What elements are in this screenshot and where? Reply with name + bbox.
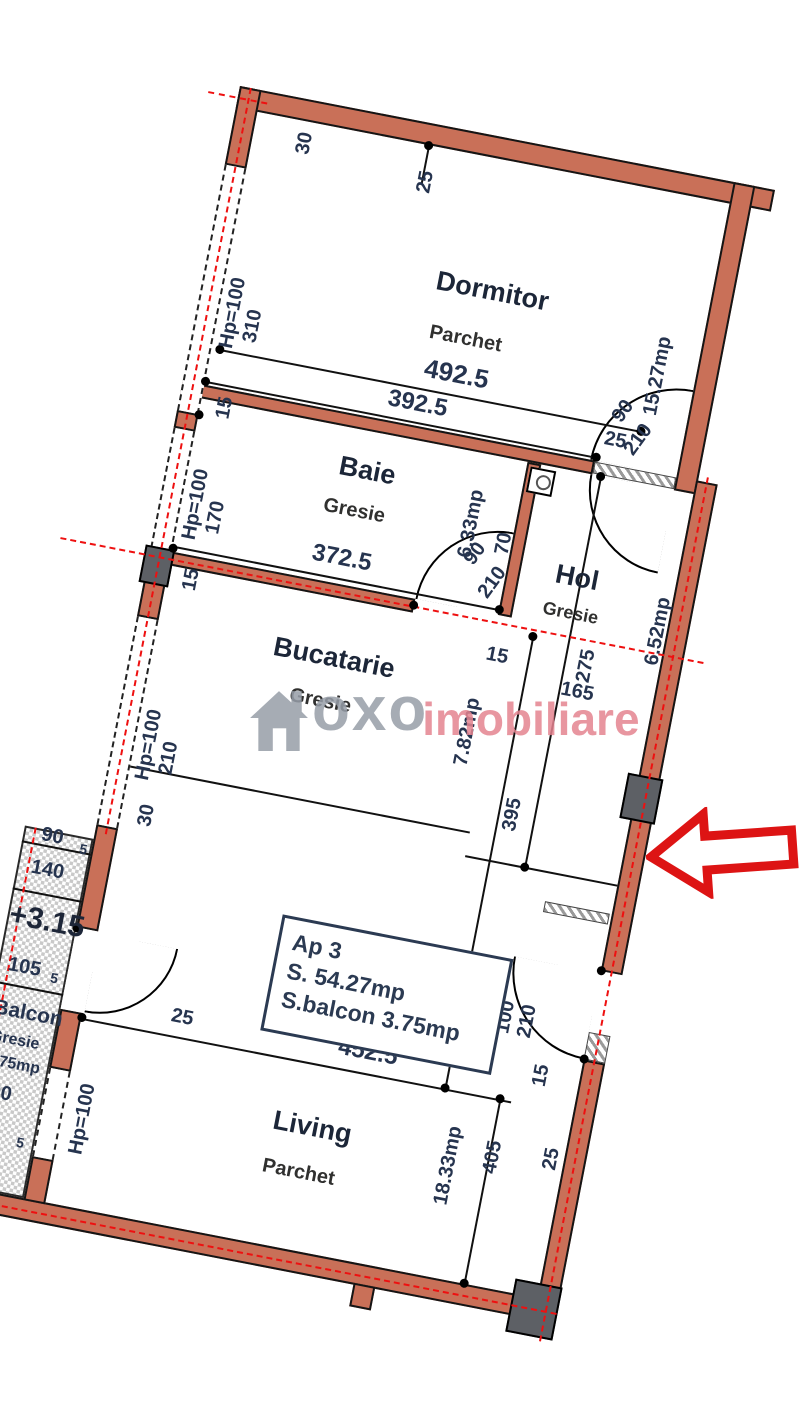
- dim-label: 170: [202, 499, 228, 536]
- wall-top: [236, 86, 775, 212]
- dim-label: 15: [179, 567, 203, 593]
- dim-label: 275: [573, 648, 599, 685]
- watermark: oxo imobiliare: [248, 682, 640, 761]
- watermark-suffix: imobiliare: [422, 696, 639, 742]
- node-dot: [194, 409, 205, 420]
- sink-icon: [526, 466, 556, 496]
- dim-label: 25: [170, 1005, 196, 1029]
- axis-line: [105, 88, 252, 834]
- room-label-living: Living: [271, 1107, 354, 1149]
- room-label-hol: Hol: [553, 560, 601, 595]
- node-dot: [77, 1012, 88, 1023]
- door-arc-hol: [574, 474, 674, 574]
- dim-line: [464, 1099, 502, 1284]
- dim-label: 90: [40, 824, 66, 848]
- room-label-baie: Baie: [337, 452, 398, 489]
- dim-label: 15: [529, 1063, 553, 1089]
- dim-label: 25: [413, 169, 437, 195]
- dim-label: 30: [134, 803, 158, 829]
- room-floor-baie: Gresie: [322, 495, 387, 527]
- room-floor-hol: Gresie: [541, 599, 599, 627]
- dim-label: 210: [155, 740, 181, 777]
- dim-label: 395: [499, 796, 525, 833]
- floor-plan-page: Dormitor Parchet 15.27mp Baie Gresie 6.3…: [0, 0, 800, 1424]
- dim-label: 15: [484, 644, 510, 668]
- watermark-brand: oxo: [312, 682, 428, 738]
- wall-right-upper: [674, 182, 756, 494]
- wall-bottom: [0, 1185, 559, 1324]
- node-dot: [408, 600, 419, 611]
- dim-label: 492.5: [422, 355, 491, 393]
- node-dot: [528, 631, 539, 642]
- door-arc-balcon: [84, 934, 178, 1028]
- room-area-living: 18.33mp: [430, 1124, 465, 1206]
- dim-label: 372.5: [310, 541, 374, 576]
- node-dot: [519, 862, 530, 873]
- dim-label: 30: [292, 130, 316, 156]
- dim-label: 15: [212, 395, 236, 421]
- entrance-arrow-icon: [643, 801, 800, 908]
- dim-label: 25: [539, 1146, 563, 1172]
- node-dot: [495, 1093, 506, 1104]
- room-label-dormitor: Dormitor: [434, 267, 551, 315]
- dim-label: Hp=100: [65, 1082, 98, 1156]
- dim-line: [130, 766, 470, 834]
- dim-label: 70: [492, 531, 516, 557]
- node-dot: [440, 1083, 451, 1094]
- house-icon: [248, 682, 310, 761]
- hall-sill: [543, 901, 610, 924]
- room-floor-dormitor: Parchet: [428, 322, 504, 356]
- node-dot: [423, 140, 434, 151]
- dim-label: 310: [239, 308, 265, 345]
- room-floor-living: Parchet: [261, 1155, 337, 1189]
- dim-label: 405: [479, 1139, 505, 1176]
- wall-stub-bottom: [349, 1283, 375, 1311]
